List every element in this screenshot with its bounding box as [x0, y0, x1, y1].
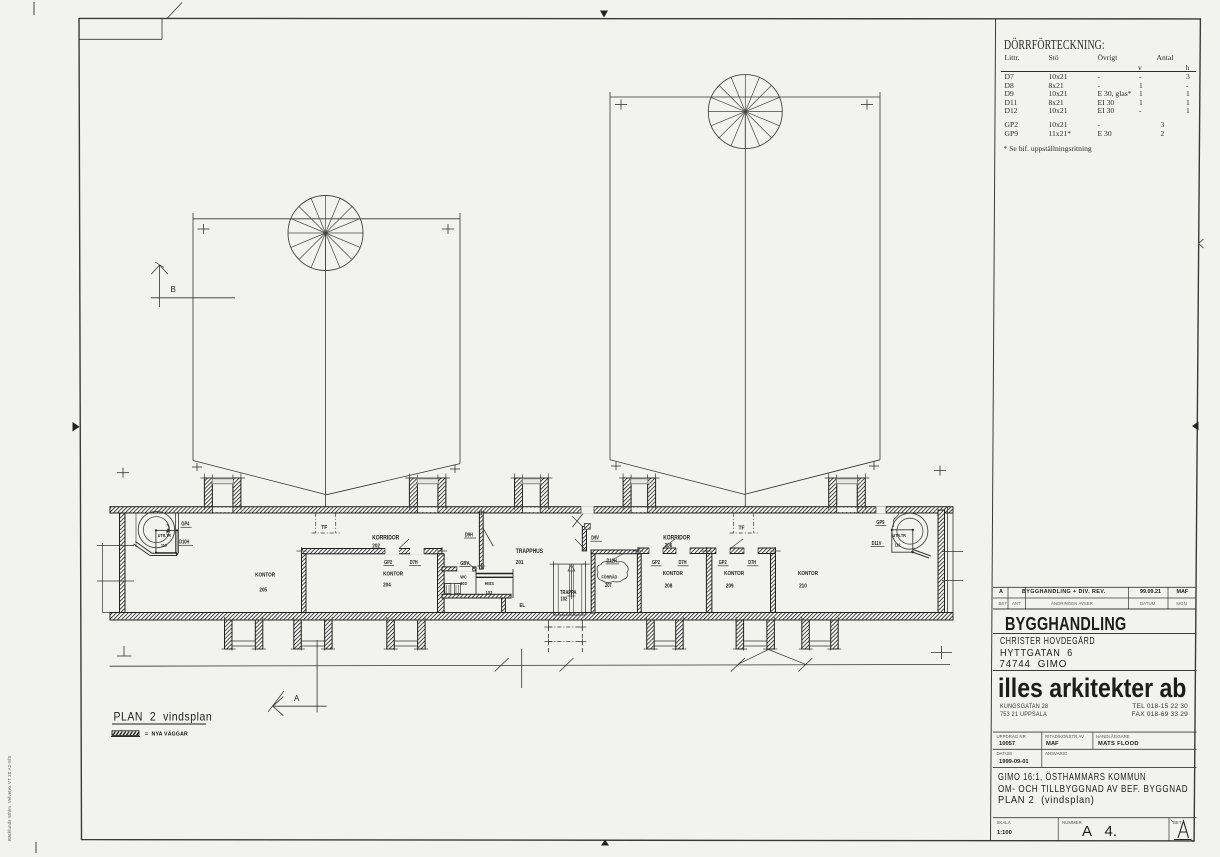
svg-text:D9V: D9V: [591, 535, 599, 541]
svg-text:TRAPPA: TRAPPA: [560, 590, 577, 595]
svg-text:204: 204: [383, 582, 391, 589]
svg-text:GP2: GP2: [719, 560, 727, 566]
svg-text:KONTOR: KONTOR: [663, 571, 683, 578]
svg-text:D7H: D7H: [410, 559, 418, 565]
svg-text:GP2: GP2: [652, 560, 660, 566]
svg-text:202: 202: [372, 543, 380, 550]
svg-text:110: 110: [161, 543, 167, 548]
svg-text:205: 205: [259, 587, 267, 594]
svg-text:HISS: HISS: [485, 580, 494, 585]
svg-text:KONTOR: KONTOR: [724, 571, 744, 578]
svg-text:103: 103: [486, 590, 493, 595]
svg-text:D7H: D7H: [679, 560, 687, 566]
svg-text:GBV: GBV: [460, 561, 469, 567]
svg-text:KORRIDOR: KORRIDOR: [663, 535, 690, 542]
svg-text:210: 210: [799, 583, 807, 590]
svg-text:D11V: D11V: [872, 540, 882, 546]
svg-text:FÖRRÅD: FÖRRÅD: [602, 574, 618, 580]
svg-text:GP2: GP2: [384, 559, 392, 565]
svg-text:209: 209: [726, 583, 734, 590]
svg-text:D10H: D10H: [179, 539, 189, 545]
svg-text:206: 206: [665, 543, 673, 550]
svg-text:UTR.TR: UTR.TR: [893, 532, 906, 537]
svg-text:112: 112: [895, 542, 901, 547]
svg-text:208: 208: [665, 583, 673, 590]
svg-text:D12H: D12H: [607, 558, 617, 564]
svg-text:GP9: GP9: [876, 519, 884, 525]
svg-text:KORRIDOR: KORRIDOR: [372, 535, 399, 542]
svg-text:EL: EL: [520, 603, 526, 608]
svg-text:WC: WC: [460, 574, 467, 579]
svg-text:UTR.TR: UTR.TR: [158, 533, 171, 538]
svg-text:PLAN 2 vindsplan: PLAN 2 vindsplan: [114, 711, 213, 724]
svg-text:D9H: D9H: [465, 532, 473, 538]
svg-text:B: B: [171, 285, 176, 294]
svg-text:D7H: D7H: [748, 560, 756, 566]
svg-text:KONTOR: KONTOR: [255, 572, 275, 579]
svg-text:TF: TF: [321, 525, 327, 531]
svg-text:= NYA VÄGGAR: = NYA VÄGGAR: [145, 731, 188, 738]
svg-text:A: A: [294, 694, 300, 703]
svg-text:207: 207: [605, 583, 612, 589]
svg-text:TF: TF: [739, 525, 745, 531]
svg-text:203: 203: [460, 581, 467, 586]
svg-text:GP4: GP4: [181, 521, 189, 527]
svg-text:KONTOR: KONTOR: [798, 571, 818, 578]
svg-text:201: 201: [516, 560, 524, 567]
svg-text:TRAPPHUS: TRAPPHUS: [516, 548, 543, 555]
svg-text:KONTOR: KONTOR: [383, 571, 403, 578]
svg-text:Bäcklunds Sthlm. Velvetex VT 2: Bäcklunds Sthlm. Velvetex VT 20 A2-S/S: [7, 756, 12, 841]
svg-text:102: 102: [561, 596, 568, 601]
